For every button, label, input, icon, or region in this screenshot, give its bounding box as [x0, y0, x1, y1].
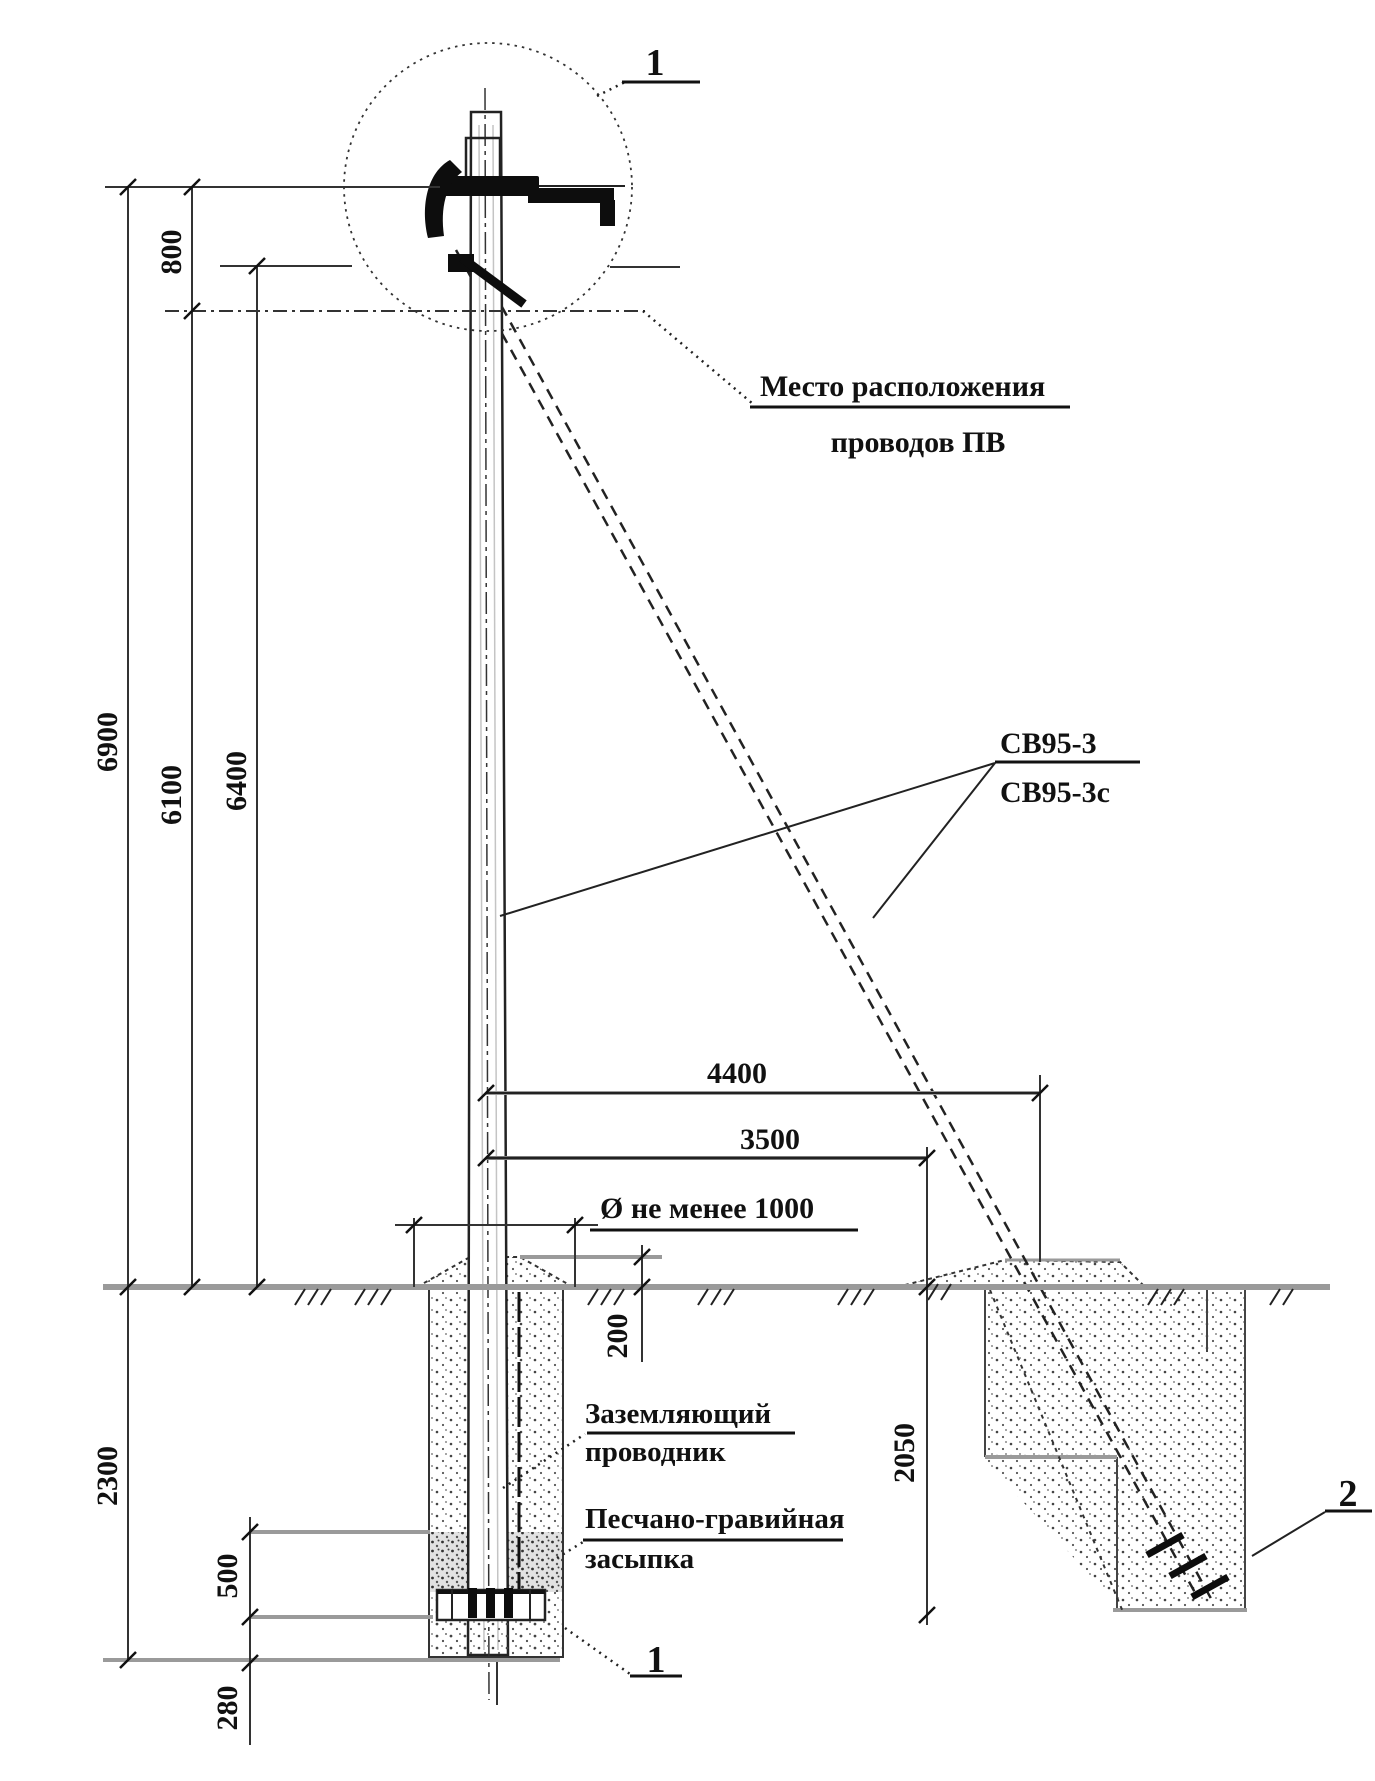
dim-200-label: 200: [601, 1314, 634, 1359]
right-mound: [897, 1260, 1145, 1287]
diameter-note-label: Ø не менее 1000: [600, 1192, 814, 1225]
dim-800-label: 800: [155, 230, 188, 275]
pole-top-hardware: [425, 138, 625, 304]
dim-4400-label: 4400: [707, 1057, 767, 1090]
dim-3500-label: 3500: [740, 1123, 800, 1156]
technical-drawing-sheet: 1 Место расположения проводов ПВ СВ95-3 …: [0, 0, 1375, 1781]
backfill-label-line1: Песчано-гравийная: [585, 1503, 845, 1535]
dim-2300-label: 2300: [91, 1446, 124, 1506]
detail-marker-top: 1: [646, 42, 665, 84]
pole-type-label-1: СВ95-3: [1000, 727, 1097, 760]
traverse-bar: [443, 176, 539, 196]
dim-6100-label: 6100: [155, 765, 188, 825]
dim-6400-label: 6400: [220, 751, 253, 811]
grounding-label-line2: проводник: [585, 1436, 726, 1468]
dim-2050-label: 2050: [888, 1423, 921, 1483]
dimension-lines: [105, 187, 1040, 1745]
pv-location-label-line2: проводов ПВ: [831, 426, 1006, 459]
side-bracket: [425, 160, 462, 238]
detail-marker-anchor: 2: [1339, 1473, 1358, 1515]
dim-280-label: 280: [211, 1686, 244, 1731]
bracket-hook: [600, 200, 615, 226]
pole-base-plate: [433, 1588, 560, 1656]
pv-location-label-line1: Место расположения: [760, 370, 1045, 403]
pole-type-label-2: СВ95-3с: [1000, 776, 1110, 809]
backfill-label-line2: засыпка: [585, 1543, 695, 1575]
dim-500-label: 500: [211, 1554, 244, 1599]
grounding-label-line1: Заземляющий: [585, 1398, 771, 1430]
dim-6900-label: 6900: [91, 712, 124, 772]
pole-drawing-canvas: 1 Место расположения проводов ПВ СВ95-3 …: [0, 0, 1375, 1781]
detail-marker-bottom: 1: [647, 1639, 666, 1681]
